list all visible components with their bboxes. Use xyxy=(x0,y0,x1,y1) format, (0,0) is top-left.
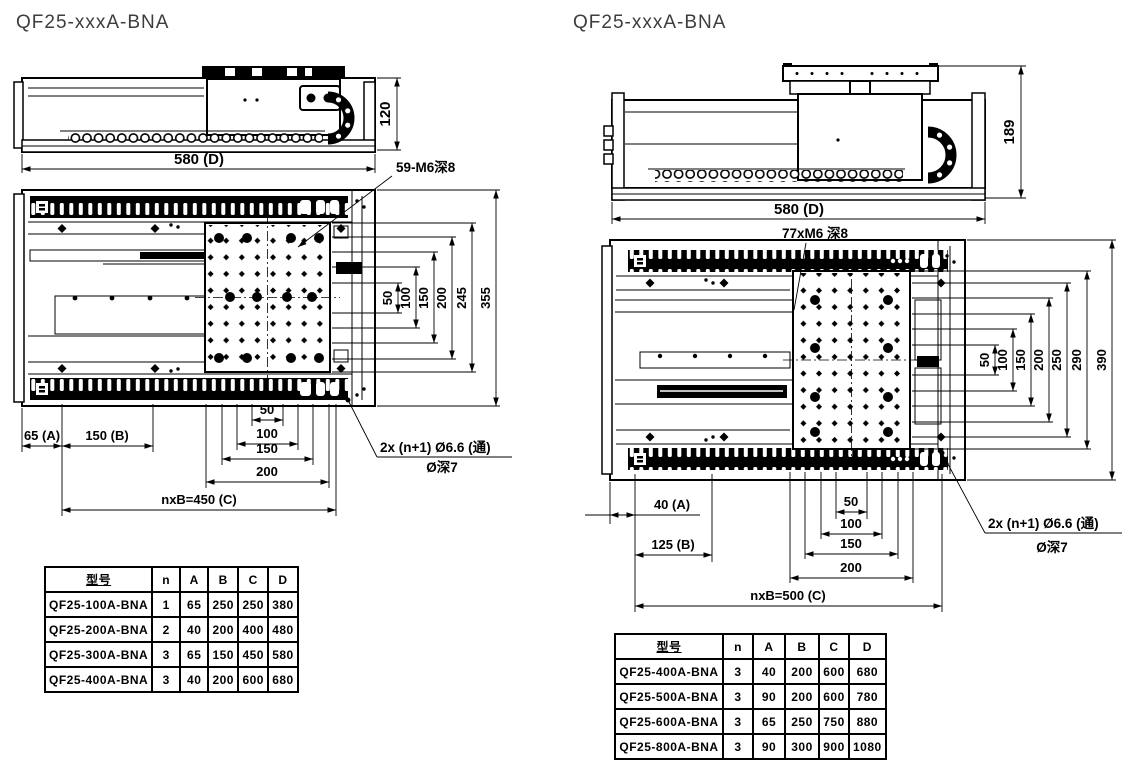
right-spec-table: 型号 n A B C D QF25-400A-BNA 3 40 200 600 … xyxy=(614,633,887,760)
right-height-dim-label: 189 xyxy=(1001,119,1018,144)
cell-model: QF25-400A-BNA xyxy=(45,667,152,692)
cell: 680 xyxy=(268,667,298,692)
thread-callout-label: 77xM6 深8 xyxy=(782,225,849,241)
dim-label: nxB=450 (C) xyxy=(161,492,237,507)
header-d: D xyxy=(849,634,886,659)
hole-callout-line2: Ø深7 xyxy=(1036,539,1068,555)
cell: 3 xyxy=(152,667,180,692)
cell: 250 xyxy=(208,592,238,617)
table-row: QF25-500A-BNA 3 90 200 600 780 xyxy=(615,684,886,709)
dim-label: 355 xyxy=(478,287,493,309)
table-row: QF25-300A-BNA 3 65 150 450 580 xyxy=(45,642,298,667)
cell: 480 xyxy=(268,617,298,642)
dim-label: 390 xyxy=(1094,349,1109,371)
dim-label: 50 xyxy=(977,353,992,367)
hole-callout-line2: Ø深7 xyxy=(426,459,458,475)
cell: 900 xyxy=(819,734,849,759)
header-d: D xyxy=(268,567,298,592)
dim-label: 100 xyxy=(995,349,1010,371)
dim-label: 200 xyxy=(434,287,449,309)
right-length-dim-label: 580 (D) xyxy=(774,201,824,218)
cell: 780 xyxy=(849,684,886,709)
thread-callout-label: 59-M6深8 xyxy=(396,159,456,175)
left-base-hole-callout: 2x (n+1) Ø6.6 (通) Ø深7 xyxy=(346,398,513,476)
right-top-view xyxy=(602,240,965,480)
cell: 450 xyxy=(238,642,268,667)
dim-label: 40 (A) xyxy=(654,497,690,512)
dim-label: 200 xyxy=(256,464,278,479)
dim-label: 200 xyxy=(1031,349,1046,371)
cell: 3 xyxy=(723,684,753,709)
right-bottom-dims: 40 (A) 125 (B) 50 100 150 200 nxB=500 (C… xyxy=(585,472,942,612)
cell-model: QF25-400A-BNA xyxy=(615,659,723,684)
dim-label: 150 xyxy=(1013,349,1028,371)
cell: 250 xyxy=(238,592,268,617)
header-model: 型号 xyxy=(615,634,723,659)
header-model: 型号 xyxy=(45,567,152,592)
cell: 65 xyxy=(180,642,208,667)
cell: 880 xyxy=(849,709,886,734)
left-vertical-dims: 50 100 150 200 245 355 xyxy=(332,190,500,406)
cell: 680 xyxy=(849,659,886,684)
cell: 150 xyxy=(208,642,238,667)
left-spec-table: 型号 n A B C D QF25-100A-BNA 1 65 250 250 … xyxy=(44,566,299,693)
left-height-dim-label: 120 xyxy=(377,101,394,126)
table-header-row: 型号 n A B C D xyxy=(45,567,298,592)
cell-model: QF25-300A-BNA xyxy=(45,642,152,667)
dim-label: 250 xyxy=(1049,349,1064,371)
dim-label: 150 xyxy=(840,536,862,551)
dim-label: 50 xyxy=(260,402,274,417)
dim-label: 150 xyxy=(416,287,431,309)
cell: 1080 xyxy=(849,734,886,759)
cell-model: QF25-500A-BNA xyxy=(615,684,723,709)
dim-label: 100 xyxy=(398,287,413,309)
dim-label: 200 xyxy=(840,560,862,575)
header-a: A xyxy=(753,634,785,659)
right-drawing: 580 (D) 189 xyxy=(585,63,1122,612)
table-row: QF25-400A-BNA 3 40 200 600 680 xyxy=(615,659,886,684)
header-n: n xyxy=(723,634,753,659)
cell-model: QF25-200A-BNA xyxy=(45,617,152,642)
cell: 90 xyxy=(753,734,785,759)
cell-model: QF25-800A-BNA xyxy=(615,734,723,759)
dim-label: 150 (B) xyxy=(85,428,128,443)
dim-label: 100 xyxy=(840,516,862,531)
cell: 600 xyxy=(819,684,849,709)
header-n: n xyxy=(152,567,180,592)
cell: 90 xyxy=(753,684,785,709)
hole-callout-line1: 2x (n+1) Ø6.6 (通) xyxy=(988,516,1099,531)
cell-model: QF25-100A-BNA xyxy=(45,592,152,617)
left-side-view xyxy=(14,66,375,152)
dim-label: 100 xyxy=(256,426,278,441)
cell: 65 xyxy=(180,592,208,617)
cell: 40 xyxy=(180,617,208,642)
dim-label: 50 xyxy=(380,291,395,305)
dim-label: 150 xyxy=(256,441,278,456)
table-header-row: 型号 n A B C D xyxy=(615,634,886,659)
left-top-view xyxy=(14,190,375,406)
table-row: QF25-100A-BNA 1 65 250 250 380 xyxy=(45,592,298,617)
header-b: B xyxy=(785,634,819,659)
dim-label: 290 xyxy=(1069,349,1084,371)
table-row: QF25-400A-BNA 3 40 200 600 680 xyxy=(45,667,298,692)
cell: 65 xyxy=(753,709,785,734)
left-bottom-dims: 65 (A) 150 (B) 50 100 150 200 nxB=450 (C… xyxy=(22,402,336,516)
cell: 3 xyxy=(723,734,753,759)
dim-label: 125 (B) xyxy=(651,537,694,552)
left-length-dim-label: 580 (D) xyxy=(174,151,224,168)
header-c: C xyxy=(819,634,849,659)
cell: 200 xyxy=(208,617,238,642)
right-vertical-dims: 50 100 150 200 250 290 390 xyxy=(912,240,1116,480)
cell: 600 xyxy=(238,667,268,692)
cell: 3 xyxy=(723,709,753,734)
left-drawing: 580 (D) 120 xyxy=(14,66,512,516)
cell: 750 xyxy=(819,709,849,734)
right-side-view xyxy=(604,63,985,200)
cell: 1 xyxy=(152,592,180,617)
cell: 3 xyxy=(723,659,753,684)
hole-callout-line1: 2x (n+1) Ø6.6 (通) xyxy=(380,440,491,455)
cell: 300 xyxy=(785,734,819,759)
drawing-sheet: QF25-xxxA-BNA QF25-xxxA-BNA xyxy=(0,0,1146,778)
cell: 250 xyxy=(785,709,819,734)
cell: 380 xyxy=(268,592,298,617)
cell: 3 xyxy=(152,642,180,667)
right-base-hole-callout: 2x (n+1) Ø6.6 (通) Ø深7 xyxy=(940,451,1123,556)
header-c: C xyxy=(238,567,268,592)
cell: 580 xyxy=(268,642,298,667)
cell: 200 xyxy=(785,659,819,684)
cell: 200 xyxy=(785,684,819,709)
header-b: B xyxy=(208,567,238,592)
table-row: QF25-800A-BNA 3 90 300 900 1080 xyxy=(615,734,886,759)
table-row: QF25-600A-BNA 3 65 250 750 880 xyxy=(615,709,886,734)
cell: 40 xyxy=(753,659,785,684)
header-a: A xyxy=(180,567,208,592)
dim-label: nxB=500 (C) xyxy=(750,588,826,603)
cell-model: QF25-600A-BNA xyxy=(615,709,723,734)
cell: 600 xyxy=(819,659,849,684)
cell: 2 xyxy=(152,617,180,642)
cell: 400 xyxy=(238,617,268,642)
table-row: QF25-200A-BNA 2 40 200 400 480 xyxy=(45,617,298,642)
cell: 200 xyxy=(208,667,238,692)
dim-label: 65 (A) xyxy=(24,428,60,443)
cell: 40 xyxy=(180,667,208,692)
dim-label: 245 xyxy=(454,287,469,309)
dim-label: 50 xyxy=(844,494,858,509)
